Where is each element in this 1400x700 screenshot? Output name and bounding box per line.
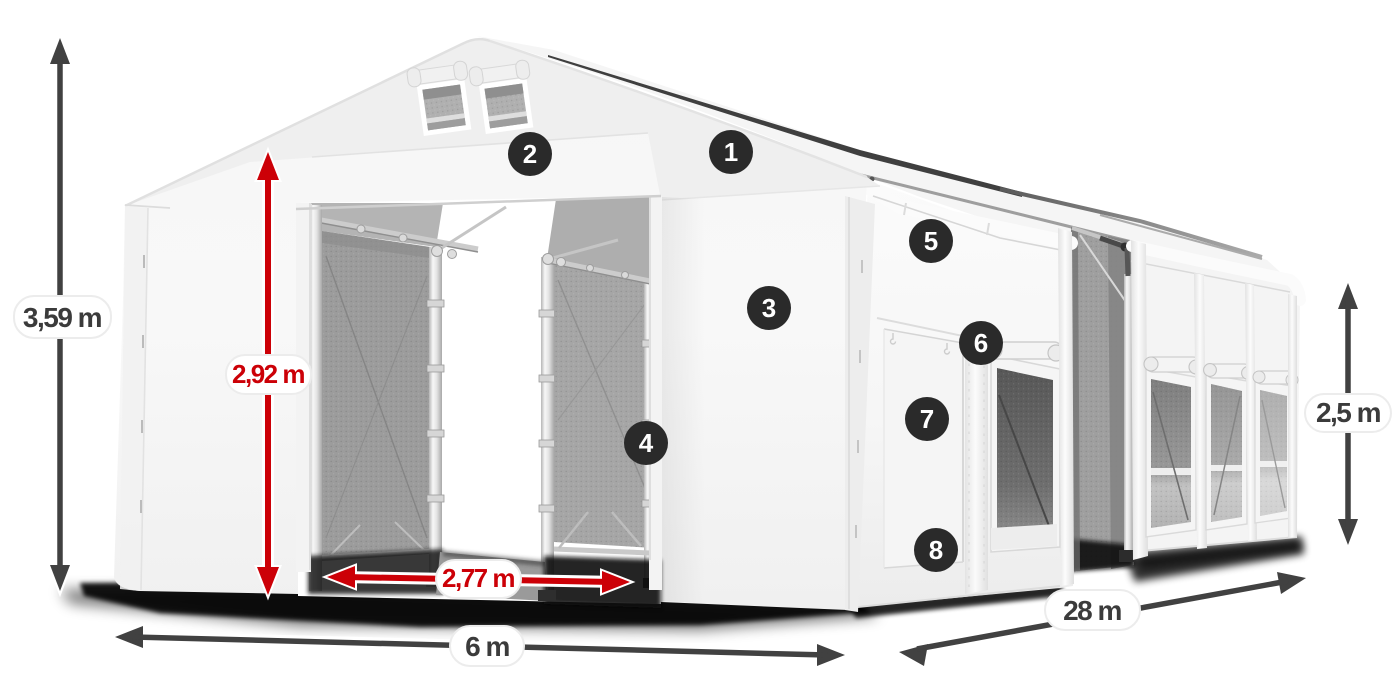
svg-text:4: 4 <box>639 428 654 458</box>
svg-text:3,59 m: 3,59 m <box>23 302 102 333</box>
svg-text:3: 3 <box>762 293 776 323</box>
svg-text:2,77 m: 2,77 m <box>442 563 514 593</box>
svg-text:5: 5 <box>924 226 938 256</box>
svg-text:2,5 m: 2,5 m <box>1316 397 1381 428</box>
svg-text:6 m: 6 m <box>465 631 509 662</box>
svg-text:7: 7 <box>920 404 934 434</box>
svg-text:8: 8 <box>929 535 943 565</box>
svg-text:28 m: 28 m <box>1063 595 1121 626</box>
svg-text:6: 6 <box>974 328 988 358</box>
svg-text:1: 1 <box>724 137 738 167</box>
svg-text:2,92 m: 2,92 m <box>232 359 304 389</box>
svg-text:2: 2 <box>523 139 537 169</box>
